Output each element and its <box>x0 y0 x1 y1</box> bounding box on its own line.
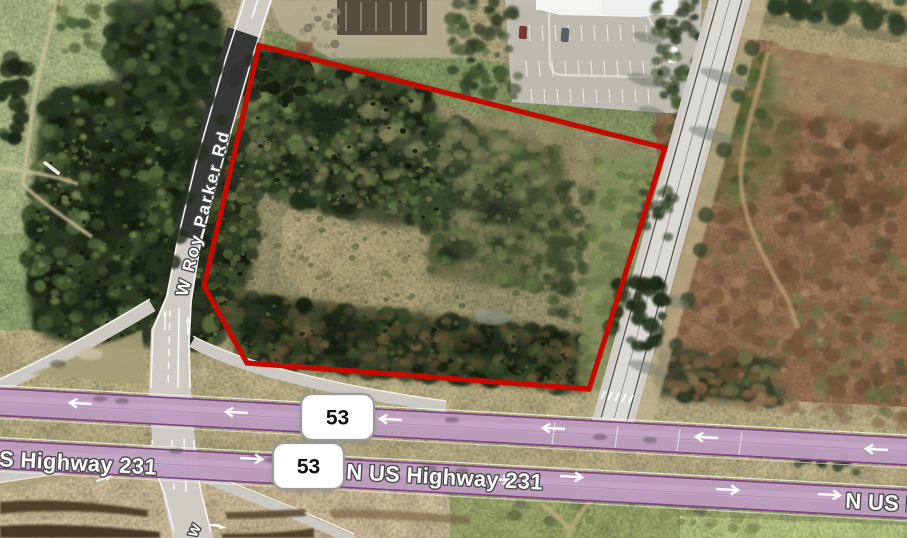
svg-text:53: 53 <box>297 456 320 479</box>
svg-text:53: 53 <box>326 407 349 430</box>
